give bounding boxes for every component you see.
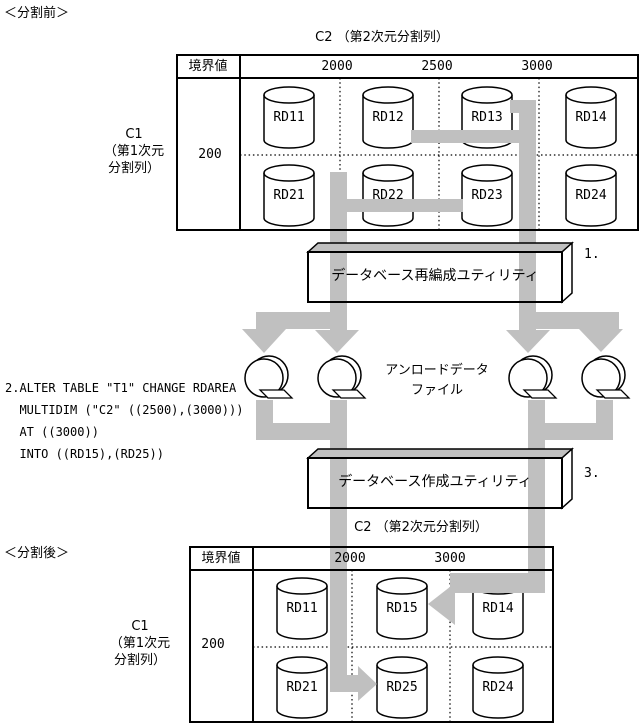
tape-icon-2: [318, 356, 365, 398]
before-col-boundary-2500: 2500: [421, 59, 452, 74]
flow-rd15-shaft: [450, 573, 545, 593]
before-col-boundary-3000: 3000: [521, 59, 552, 74]
sql-line-3: AT ((3000)): [5, 421, 99, 443]
rdarea-label-after-rd11: RD11: [286, 601, 317, 616]
create-utility-label: データベース作成ユティリティ: [338, 475, 532, 490]
sql-line-2: MULTIDIM ("C2" ((2500),(3000))): [5, 399, 243, 421]
arrowhead-to-rd25: [358, 666, 377, 701]
after-row-boundary-200: 200: [201, 637, 224, 652]
after-split-tag: ＜分割後＞: [4, 546, 69, 561]
after-col-boundary-2000: 2000: [334, 551, 365, 566]
reorg-box-side-face: [562, 243, 572, 302]
arrowhead-to-rd15: [428, 583, 455, 625]
flow-right-vertical-top: [519, 100, 536, 330]
before-c1-label-line2: （第1次元: [104, 144, 164, 159]
tape-icon-4: [582, 356, 629, 398]
unload-file-label-line1: アンロードデータ: [385, 363, 488, 378]
flow-right-vertical-bottom: [528, 400, 545, 593]
flow-rd23-stub: [347, 199, 463, 212]
step1-number: 1.: [584, 247, 600, 262]
arrowhead-to-tape3: [506, 330, 550, 353]
sql-line-4: INTO ((RD15),(RD25)): [5, 443, 164, 465]
unload-file-label-line2: ファイル: [411, 383, 463, 398]
after-c1-label-line3: 分割列）: [114, 653, 166, 668]
before-table-title: C2 （第2次元分割列）: [315, 30, 449, 45]
reorg-box-top-face: [308, 243, 572, 252]
rdarea-label-after-rd15: RD15: [386, 601, 417, 616]
rdarea-label-rd21: RD21: [273, 188, 304, 203]
create-box-side-face: [562, 449, 572, 508]
flow-rd12-stub: [411, 130, 536, 143]
arrowhead-to-tape1: [242, 329, 286, 353]
rdarea-cylinders-after: [277, 578, 523, 718]
create-box-top-face: [308, 449, 572, 458]
rdarea-label-rd13: RD13: [471, 110, 502, 125]
after-c1-label-line2: （第1次元: [110, 636, 170, 651]
before-col-boundary-2000: 2000: [321, 59, 352, 74]
partition-diagram-canvas: [0, 0, 643, 726]
flow-right-branch: [519, 312, 619, 329]
tape-icon-1: [245, 356, 292, 398]
rdarea-label-rd11: RD11: [273, 110, 304, 125]
rdarea-label-after-rd21: RD21: [286, 680, 317, 695]
tape-icon-3: [509, 356, 556, 398]
rdarea-label-after-rd25: RD25: [386, 680, 417, 695]
rdarea-label-rd14: RD14: [575, 110, 606, 125]
sql-line-1: 2.ALTER TABLE "T1" CHANGE RDAREA: [5, 377, 236, 399]
step3-number: 3.: [584, 466, 600, 481]
before-row-boundary-200: 200: [198, 147, 221, 162]
rdarea-label-after-rd14: RD14: [482, 601, 513, 616]
after-col-boundary-3000: 3000: [434, 551, 465, 566]
rdarea-label-rd12: RD12: [372, 110, 403, 125]
before-split-tag: ＜分割前＞: [4, 6, 69, 21]
rdarea-label-after-rd24: RD24: [482, 680, 513, 695]
before-boundary-header: 境界値: [188, 59, 227, 74]
reorg-utility-label: データベース再編成ユティリティ: [331, 269, 539, 284]
flow-left-branch: [256, 312, 347, 329]
after-boundary-header: 境界値: [201, 551, 240, 566]
rdarea-label-rd23: RD23: [471, 188, 502, 203]
after-c1-label-line1: C1: [131, 619, 148, 634]
arrowhead-to-tape2: [315, 330, 359, 353]
before-c1-label-line3: 分割列）: [108, 161, 160, 176]
diagram-page: ＜分割前＞ C2 （第2次元分割列） 境界値 2000 2500 3000 C1…: [0, 0, 643, 726]
rdarea-label-rd24: RD24: [575, 188, 606, 203]
rdarea-label-rd22: RD22: [372, 188, 403, 203]
after-table-title: C2 （第2次元分割列）: [354, 520, 488, 535]
arrowhead-to-tape4: [579, 329, 623, 352]
before-c1-label-line1: C1: [125, 127, 142, 142]
